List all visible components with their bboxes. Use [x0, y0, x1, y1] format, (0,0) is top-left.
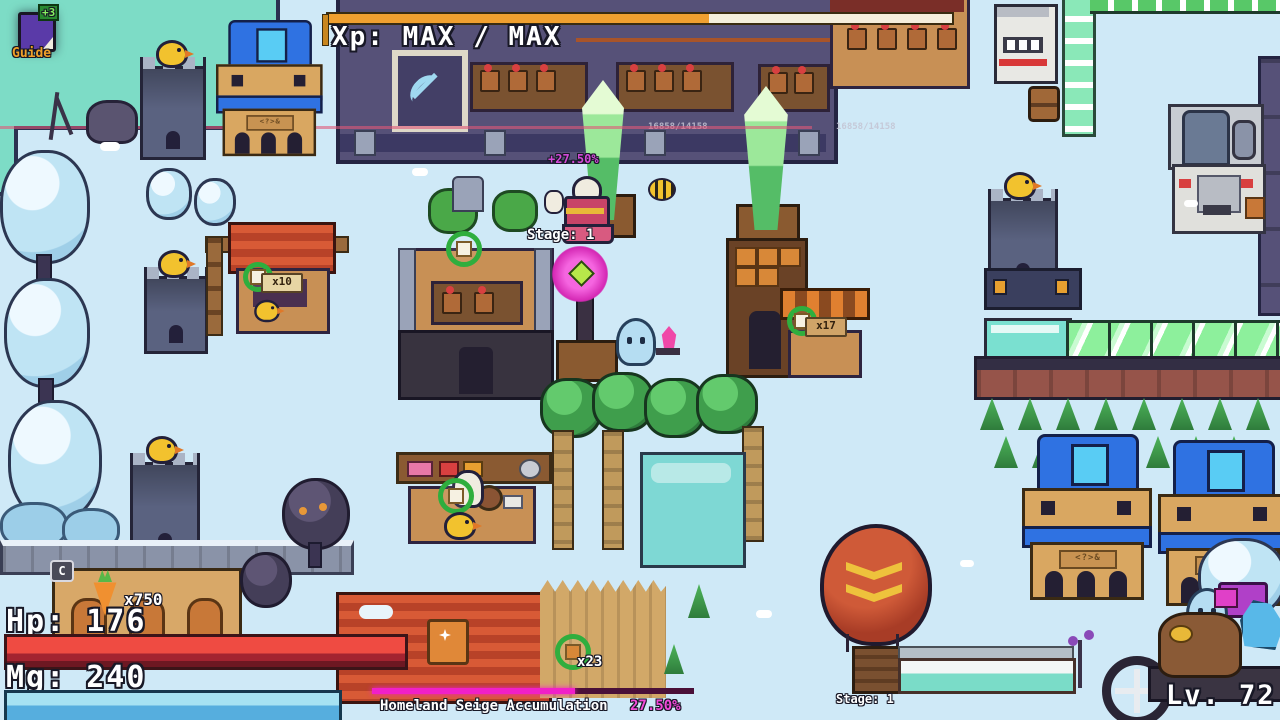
respawn-counter-x17: x17 [805, 317, 847, 337]
snow-tree [4, 278, 90, 388]
homeland-bar-track [372, 688, 694, 694]
puffball-tree [240, 552, 292, 608]
flower-pot [794, 72, 814, 94]
snow-patch [412, 168, 428, 176]
pickaxe-icon [404, 69, 445, 110]
bird-statue [156, 40, 188, 68]
red-roof-stall [228, 222, 336, 274]
tree-trunk-row [602, 430, 624, 550]
balloon-rope [846, 634, 849, 652]
berry-tree [1078, 640, 1082, 688]
snow-patch [1184, 200, 1198, 207]
greenhouse-glass-row [1066, 320, 1280, 360]
tavern-table [431, 281, 523, 325]
hedge-strip [1090, 0, 1280, 14]
homeland-label: Homeland Seige Accumulation [380, 698, 608, 714]
bird-npc [444, 512, 476, 540]
homeland-bar-fill [372, 688, 575, 694]
tree-trunk-row [552, 430, 574, 550]
flower-pot [682, 70, 702, 92]
flower-pot [626, 70, 646, 92]
glass-wall-panel [898, 658, 1076, 694]
brick-parapet [974, 356, 1280, 400]
guild-pillar [798, 130, 820, 156]
anvil-machine [1182, 110, 1230, 166]
stall-awning [830, 0, 964, 12]
mg-bar-track [4, 690, 342, 720]
blue-roof-house: <?>& [216, 20, 323, 154]
pond [640, 452, 746, 568]
flower-pot [480, 70, 500, 92]
respawn-counter-x23: x23 [577, 654, 602, 670]
flower-pot [768, 72, 788, 94]
pine-tree [1094, 398, 1118, 430]
pine-tree [1132, 398, 1156, 430]
forge-machine [1168, 104, 1264, 232]
guide-label: Guide [12, 46, 51, 61]
mg-bar-fill [7, 693, 339, 720]
pine-tree [994, 436, 1018, 468]
pine-tree [1018, 398, 1042, 430]
berry-tree-dots [1068, 636, 1078, 646]
flower-pot [847, 28, 867, 50]
stage-label-player: Stage: 1 [527, 227, 594, 243]
vending-machine [994, 4, 1058, 84]
tavern-lower [398, 330, 554, 400]
berry-tree-dots [1084, 630, 1094, 640]
game-viewport: 16858/14158 16858/14158 [0, 0, 1280, 720]
flame-stand [656, 348, 680, 355]
guild-pillar [644, 130, 666, 156]
balloon-basket [852, 646, 902, 694]
respawn-counter-x10: x10 [261, 273, 303, 293]
gargoyle-statue [452, 176, 484, 212]
stage-label-balloon: Stage: 1 [836, 692, 894, 706]
navy-platform [984, 268, 1082, 310]
snow-tree-small [146, 168, 192, 220]
pine-tree [688, 584, 710, 618]
buff-ring-marker [446, 231, 482, 267]
forge-facade [1172, 164, 1266, 234]
vending-top [997, 7, 1049, 17]
capsule [1232, 120, 1256, 160]
pink-flame [660, 326, 678, 348]
bird-statue [1004, 172, 1036, 200]
guild-pillar [484, 130, 506, 156]
flower-pot [508, 70, 528, 92]
floating-gain-text: +27.50% [548, 152, 599, 166]
bird-statue [158, 250, 190, 278]
flower-pot [937, 28, 957, 50]
snow-patch [100, 142, 120, 151]
bird-statue [146, 436, 178, 464]
xp-bar-notch [322, 14, 329, 46]
magenta-chest [1214, 588, 1238, 608]
flower-pot [907, 28, 927, 50]
buff-ring-marker [438, 478, 474, 514]
watchtower [144, 276, 208, 354]
item-key-hint[interactable]: C [50, 560, 74, 582]
guild-pillar [354, 130, 376, 156]
hot-air-balloon [820, 524, 932, 646]
xp-label: Xp: MAX / MAX [332, 22, 562, 52]
bee-sprite [648, 178, 676, 201]
puffball-tree [282, 478, 350, 550]
homeland-value: 27.50% [630, 698, 681, 714]
watchtower [140, 66, 206, 160]
flower-pot [654, 70, 674, 92]
wood-fence [206, 236, 223, 336]
vending-window [1003, 37, 1043, 53]
pet-sprite [544, 190, 564, 214]
pickaxe-picture-frame [392, 50, 468, 132]
flower-pot [536, 70, 556, 92]
xp-underline [576, 38, 830, 42]
mint-wall [1062, 0, 1096, 137]
level-label: Lv. 72 [1166, 680, 1276, 711]
canopy-stall-counter [788, 330, 862, 378]
barrel [1028, 86, 1060, 122]
blue-ghost [616, 318, 656, 366]
green-tree [696, 374, 758, 434]
pine-tree [664, 644, 684, 674]
pine-tree [1208, 398, 1232, 430]
bird-npc [254, 300, 280, 322]
vending-stripe [999, 59, 1047, 66]
tavern-vines [492, 190, 538, 232]
rock [86, 100, 138, 144]
snow-tree [0, 150, 90, 264]
pine-tree [1246, 398, 1270, 430]
blue-roof-house: <?>& [1022, 434, 1152, 598]
flower-pot [877, 28, 897, 50]
snow-patch [756, 610, 772, 618]
guide-button[interactable]: +3 Guide [8, 4, 72, 60]
crystal-hp-right: 16858/14158 [836, 122, 896, 132]
pine-tree [1056, 398, 1080, 430]
guide-badge: +3 [38, 4, 59, 21]
orchard-pine-row [980, 398, 1280, 432]
snow-tree-small [194, 178, 236, 226]
pine-tree [980, 398, 1004, 430]
cargo-sack [1158, 612, 1242, 678]
snow-patch [960, 560, 974, 567]
pine-tree [1170, 398, 1194, 430]
tree-trunk [308, 542, 322, 568]
